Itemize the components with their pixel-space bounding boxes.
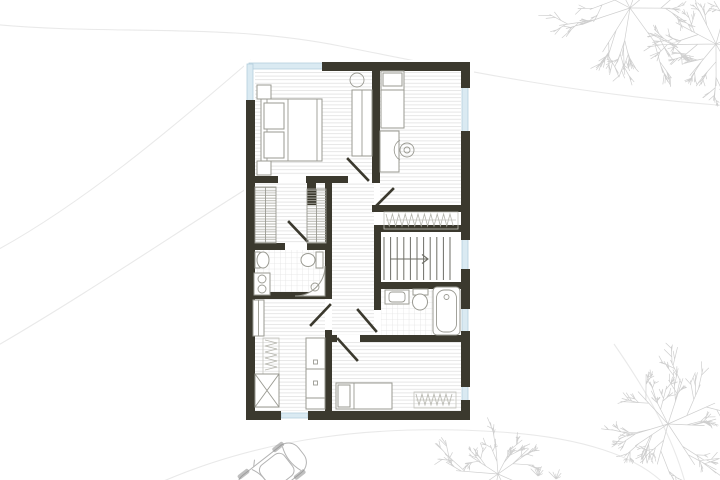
clothes-rack <box>307 189 326 243</box>
window-top <box>249 63 324 69</box>
crossed-box <box>255 374 279 407</box>
clothes-rack <box>255 187 276 243</box>
toilet <box>413 289 429 310</box>
window-right-office <box>462 87 468 132</box>
cabinet-stack <box>306 338 325 409</box>
nightstand <box>257 85 271 99</box>
window-right-bath <box>462 308 468 332</box>
double-bed <box>261 99 322 161</box>
car-wheel <box>237 468 250 480</box>
single-bed <box>381 71 404 128</box>
bathtub <box>433 287 460 335</box>
nightstand <box>257 161 271 175</box>
window-left <box>247 64 253 102</box>
tree-canopy <box>644 0 720 106</box>
wardrobe <box>352 90 372 156</box>
window-right-bedroom <box>462 386 468 401</box>
site-plan-canvas <box>0 0 720 480</box>
window-right-stairs <box>462 239 468 270</box>
lower-bed <box>336 383 392 409</box>
floor-corridor <box>332 183 374 335</box>
vanity-sink <box>385 290 409 304</box>
sink <box>255 252 269 268</box>
floor-plan <box>244 60 474 422</box>
site-plan-page <box>0 0 720 480</box>
window-bottom-door <box>281 413 308 418</box>
grass-tuft <box>549 470 561 479</box>
washer-stack <box>254 273 270 295</box>
tree-canopy <box>601 343 720 480</box>
tree-canopy <box>435 418 543 480</box>
car-wheel <box>293 469 306 480</box>
ironing-board <box>253 300 264 336</box>
toilet <box>301 252 323 268</box>
desk <box>380 131 399 172</box>
tree-canopies <box>435 0 720 480</box>
